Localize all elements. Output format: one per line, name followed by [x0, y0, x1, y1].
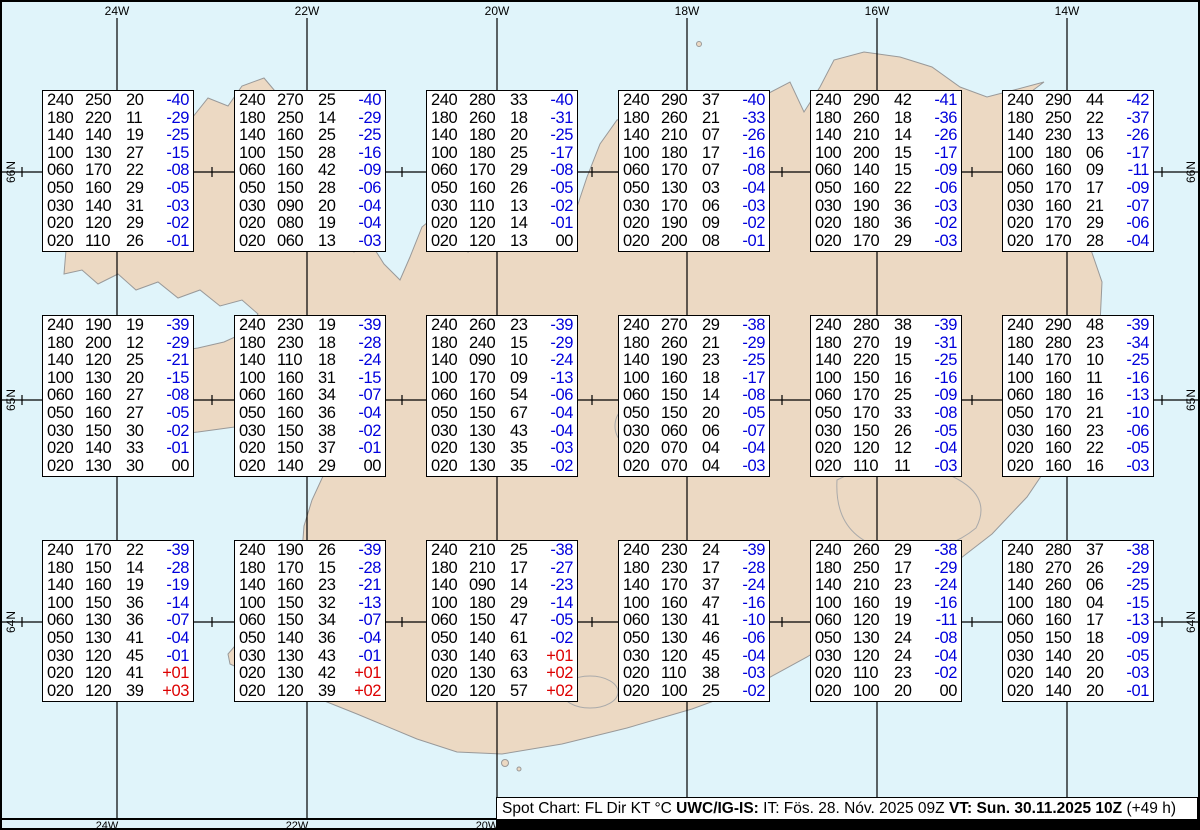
wind-dir-value: 260 — [661, 335, 697, 352]
spot-data-row: 06017007-08 — [623, 162, 765, 179]
wind-speed-kt-value: 25 — [318, 92, 342, 109]
flight-level-value: 020 — [47, 665, 80, 682]
wind-dir-value: 240 — [469, 335, 505, 352]
wind-speed-kt-value: 06 — [702, 198, 726, 215]
temperature-value: -40 — [731, 92, 765, 109]
flight-level-value: 020 — [1007, 683, 1040, 700]
temperature-value: -09 — [923, 162, 957, 179]
spot-data-row: 06016034-07 — [239, 387, 381, 404]
spot-data-row: 03015038-02 — [239, 423, 381, 440]
flight-level-value: 020 — [431, 440, 464, 457]
wind-dir-value: 170 — [85, 542, 121, 559]
wind-dir-value: 150 — [1045, 630, 1081, 647]
wind-dir-value: 170 — [1045, 352, 1081, 369]
wind-dir-value: 280 — [1045, 335, 1081, 352]
wind-speed-kt-value: 15 — [510, 335, 534, 352]
spot-data-row: 06016027-08 — [47, 387, 189, 404]
temperature-value: -11 — [923, 612, 957, 629]
wind-speed-kt-value: 26 — [126, 233, 150, 250]
wind-speed-kt-value: 10 — [1086, 352, 1110, 369]
spot-data-row: 05014036-04 — [239, 630, 381, 647]
temperature-value: -02 — [731, 215, 765, 232]
wind-dir-value: 280 — [853, 317, 889, 334]
wind-speed-kt-value: 15 — [894, 162, 918, 179]
wind-speed-kt-value: 41 — [126, 630, 150, 647]
wind-dir-value: 160 — [85, 180, 121, 197]
wind-speed-kt-value: 20 — [510, 127, 534, 144]
wind-dir-value: 180 — [1045, 387, 1081, 404]
temperature-value: -39 — [539, 317, 573, 334]
temperature-value: -28 — [155, 560, 189, 577]
spot-data-row: 10016019-16 — [815, 595, 957, 612]
wind-speed-kt-value: 13 — [510, 233, 534, 250]
flight-level-value: 020 — [815, 683, 848, 700]
flight-level-value: 030 — [1007, 423, 1040, 440]
latitude-label-left: 65N — [4, 389, 18, 411]
wind-speed-kt-value: 11 — [126, 110, 150, 127]
spot-data-row: 06014015-09 — [815, 162, 957, 179]
wind-dir-value: 260 — [469, 317, 505, 334]
temperature-value: -07 — [347, 387, 381, 404]
wind-speed-kt-value: 23 — [318, 577, 342, 594]
temperature-value: -05 — [155, 405, 189, 422]
wind-dir-value: 070 — [661, 440, 697, 457]
spot-data-box: 24029037-4018026021-3314021007-261001801… — [618, 90, 770, 252]
spot-data-row: 24029044-42 — [1007, 92, 1149, 109]
wind-dir-value: 170 — [853, 233, 889, 250]
wind-speed-kt-value: 45 — [702, 648, 726, 665]
wind-dir-value: 270 — [1045, 560, 1081, 577]
wind-speed-kt-value: 27 — [126, 145, 150, 162]
spot-data-row: 02012041+01 — [47, 665, 189, 682]
spot-data-row: 10018017-16 — [623, 145, 765, 162]
flight-level-value: 050 — [239, 180, 272, 197]
longitude-label-top: 18W — [675, 4, 700, 18]
wind-dir-value: 130 — [469, 458, 505, 475]
spot-data-row: 03012045-01 — [47, 648, 189, 665]
wind-speed-kt-value: 63 — [510, 665, 534, 682]
spot-data-row: 03006006-07 — [623, 423, 765, 440]
island-vestmannaeyjar — [502, 760, 509, 767]
wind-speed-kt-value: 45 — [126, 648, 150, 665]
wind-dir-value: 120 — [85, 648, 121, 665]
temperature-value: -06 — [539, 387, 573, 404]
wind-speed-kt-value: 29 — [126, 180, 150, 197]
flight-level-value: 030 — [431, 648, 464, 665]
temperature-value: -06 — [1115, 423, 1149, 440]
spot-data-row: 10013020-15 — [47, 370, 189, 387]
temperature-value: -10 — [1115, 405, 1149, 422]
wind-speed-kt-value: 33 — [126, 440, 150, 457]
spot-data-row: 02007004-04 — [623, 440, 765, 457]
wind-speed-kt-value: 11 — [1086, 370, 1110, 387]
wind-dir-value: 190 — [853, 198, 889, 215]
temperature-value: -27 — [539, 560, 573, 577]
temperature-value: -07 — [347, 612, 381, 629]
wind-dir-value: 130 — [277, 665, 313, 682]
temperature-value: -24 — [923, 577, 957, 594]
flight-level-value: 100 — [47, 595, 80, 612]
temperature-value: -04 — [347, 630, 381, 647]
wind-speed-kt-value: 19 — [318, 317, 342, 334]
temperature-value: -39 — [731, 542, 765, 559]
spot-data-row: 02007004-03 — [623, 458, 765, 475]
temperature-value: -06 — [347, 180, 381, 197]
flight-level-value: 020 — [1007, 215, 1040, 232]
spot-data-row: 24017022-39 — [47, 542, 189, 559]
spot-data-row: 05015028-06 — [239, 180, 381, 197]
spot-data-row: 02012039+02 — [239, 683, 381, 700]
flight-level-value: 020 — [623, 233, 656, 250]
wind-dir-value: 140 — [469, 630, 505, 647]
wind-speed-kt-value: 35 — [510, 458, 534, 475]
wind-speed-kt-value: 31 — [318, 370, 342, 387]
flight-level-value: 060 — [431, 612, 464, 629]
temperature-value: -03 — [923, 198, 957, 215]
wind-speed-kt-value: 25 — [126, 352, 150, 369]
flight-level-value: 020 — [239, 665, 272, 682]
flight-level-value: 050 — [47, 180, 80, 197]
wind-speed-kt-value: 17 — [702, 560, 726, 577]
flight-level-value: 030 — [239, 198, 272, 215]
temperature-value: -29 — [539, 335, 573, 352]
flight-level-value: 180 — [431, 560, 464, 577]
flight-level-value: 020 — [47, 458, 80, 475]
wind-dir-value: 160 — [85, 405, 121, 422]
spot-data-row: 18015014-28 — [47, 560, 189, 577]
wind-dir-value: 160 — [85, 387, 121, 404]
flight-level-value: 140 — [623, 577, 656, 594]
wind-dir-value: 120 — [661, 648, 697, 665]
flight-level-value: 030 — [47, 423, 80, 440]
spot-data-row: 05017033-08 — [815, 405, 957, 422]
temperature-value: -13 — [1115, 612, 1149, 629]
wind-speed-kt-value: 21 — [1086, 405, 1110, 422]
flight-level-value: 060 — [623, 162, 656, 179]
temperature-value: -25 — [731, 352, 765, 369]
flight-level-value: 100 — [239, 595, 272, 612]
flight-level-value: 180 — [623, 335, 656, 352]
spot-data-row: 18020012-29 — [47, 335, 189, 352]
spot-data-row: 02011023-02 — [815, 665, 957, 682]
wind-dir-value: 220 — [85, 110, 121, 127]
flight-level-value: 180 — [47, 335, 80, 352]
temperature-value: -38 — [539, 542, 573, 559]
wind-speed-kt-value: 28 — [318, 180, 342, 197]
temperature-value: -03 — [1115, 458, 1149, 475]
spot-data-row: 02010025-02 — [623, 683, 765, 700]
wind-speed-kt-value: 37 — [702, 92, 726, 109]
flight-level-value: 060 — [1007, 162, 1040, 179]
flight-level-value: 100 — [623, 595, 656, 612]
wind-speed-kt-value: 48 — [1086, 317, 1110, 334]
temperature-value: -13 — [347, 595, 381, 612]
temperature-value: -08 — [923, 630, 957, 647]
flight-level-value: 180 — [239, 560, 272, 577]
spot-data-box: 24017022-3918015014-2814016019-191001503… — [42, 540, 194, 702]
wind-speed-kt-value: 13 — [510, 198, 534, 215]
wind-speed-kt-value: 36 — [894, 198, 918, 215]
spot-data-row: 02011026-01 — [47, 233, 189, 250]
wind-dir-value: 100 — [661, 683, 697, 700]
temperature-value: -16 — [1115, 370, 1149, 387]
wind-speed-kt-value: 29 — [894, 233, 918, 250]
wind-dir-value: 120 — [85, 683, 121, 700]
spot-data-row: 06018016-13 — [1007, 387, 1149, 404]
wind-dir-value: 090 — [277, 198, 313, 215]
spot-data-row: 14019023-25 — [623, 352, 765, 369]
wind-speed-kt-value: 26 — [318, 542, 342, 559]
wind-dir-value: 140 — [277, 630, 313, 647]
wind-dir-value: 150 — [277, 180, 313, 197]
spot-data-row: 06012019-11 — [815, 612, 957, 629]
wind-dir-value: 140 — [85, 127, 121, 144]
wind-dir-value: 110 — [85, 233, 121, 250]
flight-level-value: 030 — [431, 423, 464, 440]
temperature-value: -08 — [731, 162, 765, 179]
wind-dir-value: 140 — [853, 162, 889, 179]
flight-level-value: 020 — [815, 215, 848, 232]
temperature-value: -01 — [347, 648, 381, 665]
spot-data-row: 03019036-03 — [815, 198, 957, 215]
temperature-value: -17 — [923, 145, 957, 162]
spot-data-row: 06016009-11 — [1007, 162, 1149, 179]
status-text: Spot Chart: FL Dir KT °C — [502, 800, 676, 818]
wind-speed-kt-value: 19 — [894, 595, 918, 612]
flight-level-value: 030 — [815, 423, 848, 440]
spot-data-row: 18026018-31 — [431, 110, 573, 127]
temperature-value: -25 — [1115, 352, 1149, 369]
flight-level-value: 030 — [815, 198, 848, 215]
flight-level-value: 020 — [239, 233, 272, 250]
wind-dir-value: 170 — [1045, 215, 1081, 232]
wind-speed-kt-value: 15 — [318, 560, 342, 577]
spot-data-row: 06015014-08 — [623, 387, 765, 404]
wind-speed-kt-value: 24 — [702, 542, 726, 559]
wind-dir-value: 150 — [853, 370, 889, 387]
flight-level-value: 100 — [1007, 595, 1040, 612]
wind-speed-kt-value: 16 — [894, 370, 918, 387]
wind-speed-kt-value: 25 — [702, 683, 726, 700]
spot-data-row: 10016031-15 — [239, 370, 381, 387]
wind-speed-kt-value: 44 — [1086, 92, 1110, 109]
flight-level-value: 180 — [1007, 560, 1040, 577]
wind-speed-kt-value: 11 — [894, 458, 918, 475]
temperature-value: -08 — [539, 162, 573, 179]
spot-data-row: 05013041-04 — [47, 630, 189, 647]
wind-speed-kt-value: 23 — [894, 577, 918, 594]
wind-speed-kt-value: 63 — [510, 648, 534, 665]
spot-data-row: 10016011-16 — [1007, 370, 1149, 387]
flight-level-value: 060 — [47, 162, 80, 179]
temperature-value: -08 — [731, 387, 765, 404]
temperature-value: -03 — [731, 198, 765, 215]
wind-speed-kt-value: 18 — [318, 335, 342, 352]
temperature-value: 00 — [923, 683, 957, 700]
temperature-value: -39 — [155, 317, 189, 334]
temperature-value: -05 — [539, 612, 573, 629]
spot-data-row: 06013036-07 — [47, 612, 189, 629]
latitude-label-right: 66N — [1184, 161, 1198, 183]
temperature-value: -15 — [347, 370, 381, 387]
temperature-value: -31 — [923, 335, 957, 352]
spot-data-row: 18021017-27 — [431, 560, 573, 577]
spot-data-row: 18017015-28 — [239, 560, 381, 577]
temperature-value: -04 — [731, 648, 765, 665]
wind-speed-kt-value: 19 — [894, 335, 918, 352]
spot-data-row: 03012024-04 — [815, 648, 957, 665]
spot-data-row: 02017028-04 — [1007, 233, 1149, 250]
flight-level-value: 180 — [623, 560, 656, 577]
flight-level-value: 240 — [431, 542, 464, 559]
wind-speed-kt-value: 37 — [1086, 542, 1110, 559]
wind-dir-value: 150 — [277, 423, 313, 440]
wind-speed-kt-value: 42 — [318, 665, 342, 682]
wind-speed-kt-value: 43 — [510, 423, 534, 440]
wind-dir-value: 160 — [277, 370, 313, 387]
spot-data-row: 10018006-17 — [1007, 145, 1149, 162]
flight-level-value: 180 — [431, 110, 464, 127]
wind-dir-value: 260 — [853, 110, 889, 127]
spot-data-row: 02012012-04 — [815, 440, 957, 457]
flight-level-value: 020 — [1007, 440, 1040, 457]
wind-dir-value: 160 — [853, 180, 889, 197]
wind-dir-value: 130 — [469, 423, 505, 440]
flight-level-value: 030 — [1007, 648, 1040, 665]
wind-speed-kt-value: 12 — [126, 335, 150, 352]
temperature-value: -04 — [1115, 233, 1149, 250]
flight-level-value: 060 — [431, 387, 464, 404]
wind-dir-value: 230 — [277, 335, 313, 352]
temperature-value: -39 — [1115, 317, 1149, 334]
spot-data-box: 24019026-3918017015-2814016023-211001503… — [234, 540, 386, 702]
wind-speed-kt-value: 54 — [510, 387, 534, 404]
temperature-value: -40 — [155, 92, 189, 109]
longitude-label-top: 16W — [865, 4, 890, 18]
temperature-value: -01 — [1115, 683, 1149, 700]
wind-speed-kt-value: 20 — [126, 92, 150, 109]
wind-dir-value: 160 — [1045, 198, 1081, 215]
wind-dir-value: 180 — [661, 145, 697, 162]
flight-level-value: 100 — [431, 370, 464, 387]
spot-data-row: 18025014-29 — [239, 110, 381, 127]
wind-dir-value: 250 — [1045, 110, 1081, 127]
spot-data-row: 14018020-25 — [431, 127, 573, 144]
spot-data-row: 14016023-21 — [239, 577, 381, 594]
flight-level-value: 100 — [1007, 145, 1040, 162]
wind-speed-kt-value: 29 — [318, 458, 342, 475]
wind-dir-value: 190 — [85, 317, 121, 334]
temperature-value: -01 — [731, 233, 765, 250]
spot-data-box: 24029048-3918028023-3414017010-251001601… — [1002, 315, 1154, 477]
wind-dir-value: 170 — [853, 405, 889, 422]
spot-data-row: 06017022-08 — [47, 162, 189, 179]
wind-speed-kt-value: 17 — [510, 560, 534, 577]
flight-level-value: 030 — [239, 423, 272, 440]
spot-data-box: 24029044-4218025022-3714023013-261001800… — [1002, 90, 1154, 252]
wind-dir-value: 260 — [1045, 577, 1081, 594]
wind-dir-value: 290 — [661, 92, 697, 109]
flight-level-value: 180 — [47, 560, 80, 577]
spot-data-row: 18023017-28 — [623, 560, 765, 577]
wind-speed-kt-value: 29 — [126, 215, 150, 232]
temperature-value: +01 — [347, 665, 381, 682]
spot-data-row: 24028037-38 — [1007, 542, 1149, 559]
wind-dir-value: 190 — [277, 542, 313, 559]
spot-data-row: 02011011-03 — [815, 458, 957, 475]
wind-dir-value: 130 — [85, 630, 121, 647]
flight-level-value: 050 — [1007, 405, 1040, 422]
temperature-value: -03 — [155, 198, 189, 215]
flight-level-value: 060 — [47, 387, 80, 404]
spot-data-row: 02014020-01 — [1007, 683, 1149, 700]
flight-level-value: 020 — [239, 440, 272, 457]
temperature-value: -17 — [1115, 145, 1149, 162]
temperature-value: -01 — [155, 648, 189, 665]
temperature-value: -01 — [539, 215, 573, 232]
wind-dir-value: 150 — [85, 595, 121, 612]
temperature-value: 00 — [155, 458, 189, 475]
temperature-value: -08 — [923, 405, 957, 422]
wind-dir-value: 290 — [1045, 92, 1081, 109]
flight-level-value: 020 — [47, 215, 80, 232]
wind-dir-value: 210 — [853, 127, 889, 144]
wind-speed-kt-value: 18 — [702, 370, 726, 387]
status-bar: Spot Chart: FL Dir KT °C UWC/IG-IS: IT: … — [496, 797, 1198, 820]
wind-speed-kt-value: 09 — [1086, 162, 1110, 179]
wind-dir-value: 270 — [277, 92, 313, 109]
wind-dir-value: 170 — [469, 162, 505, 179]
spot-data-row: 18026021-33 — [623, 110, 765, 127]
flight-level-value: 100 — [239, 370, 272, 387]
status-text: IT: Fös. 28. Nóv. 2025 09Z — [759, 800, 949, 818]
spot-data-box: 24025020-4018022011-2914014019-251001302… — [42, 90, 194, 252]
latitude-label-right: 65N — [1184, 389, 1198, 411]
wind-dir-value: 170 — [277, 560, 313, 577]
wind-dir-value: 110 — [661, 665, 697, 682]
spot-data-row: 18026021-29 — [623, 335, 765, 352]
wind-speed-kt-value: 09 — [510, 370, 534, 387]
flight-level-value: 050 — [239, 405, 272, 422]
wind-dir-value: 270 — [853, 335, 889, 352]
wind-dir-value: 150 — [661, 387, 697, 404]
spot-data-row: 05017021-10 — [1007, 405, 1149, 422]
flight-level-value: 030 — [1007, 198, 1040, 215]
wind-speed-kt-value: 25 — [510, 145, 534, 162]
flight-level-value: 060 — [239, 612, 272, 629]
temperature-value: -23 — [539, 577, 573, 594]
wind-dir-value: 150 — [469, 612, 505, 629]
temperature-value: -07 — [731, 423, 765, 440]
flight-level-value: 240 — [623, 542, 656, 559]
flight-level-value: 240 — [47, 542, 80, 559]
temperature-value: -05 — [1115, 648, 1149, 665]
wind-dir-value: 120 — [85, 215, 121, 232]
flight-level-value: 100 — [431, 145, 464, 162]
wind-dir-value: 280 — [469, 92, 505, 109]
temperature-value: -25 — [539, 127, 573, 144]
spot-data-row: 10015032-13 — [239, 595, 381, 612]
temperature-value: -03 — [923, 458, 957, 475]
wind-dir-value: 150 — [277, 612, 313, 629]
temperature-value: -02 — [539, 630, 573, 647]
wind-speed-kt-value: 23 — [894, 665, 918, 682]
flight-level-value: 050 — [239, 630, 272, 647]
flight-level-value: 030 — [623, 198, 656, 215]
wind-speed-kt-value: 15 — [894, 145, 918, 162]
spot-data-box: 24023024-3918023017-2814017037-241001604… — [618, 540, 770, 702]
flight-level-value: 030 — [623, 423, 656, 440]
